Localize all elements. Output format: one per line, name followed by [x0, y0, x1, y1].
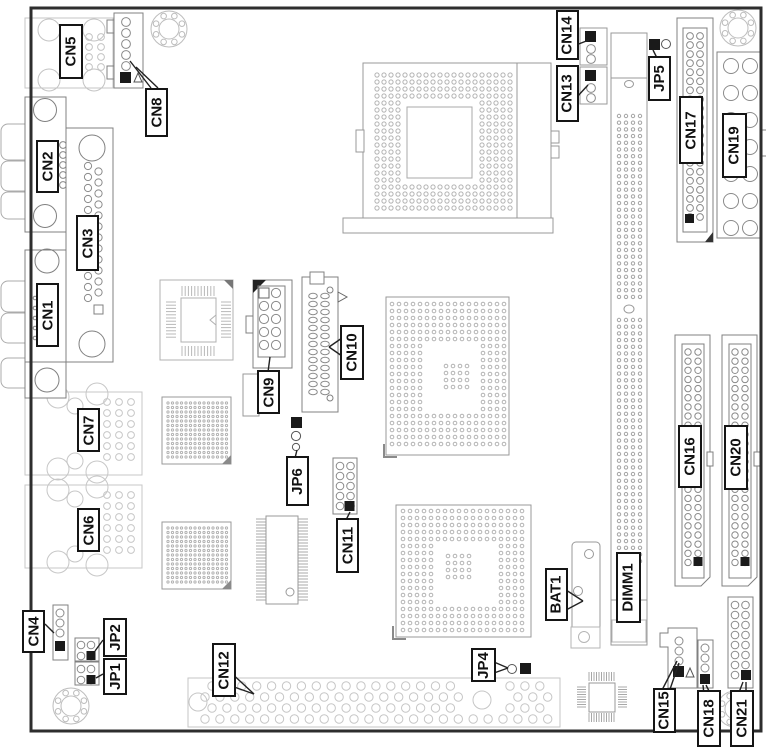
qfp2-pins-right: [618, 687, 627, 707]
label-dimm1-text: DIMM1: [621, 563, 636, 611]
connector-cn9: [246, 280, 292, 368]
label-cn13-text: CN13: [560, 74, 575, 112]
jp4-pin1-marker: [520, 663, 531, 674]
label-cn19: CN19: [722, 113, 747, 178]
cpu-socket-tab: [356, 130, 364, 152]
label-cn12: CN12: [212, 643, 236, 697]
label-cn12-text: CN12: [217, 651, 232, 689]
connector-cn21: [728, 597, 753, 688]
label-cn6-text: CN6: [81, 515, 96, 545]
label-jp1: JP1: [103, 658, 127, 695]
label-cn4: CN4: [22, 610, 45, 653]
cn10-notch: [310, 272, 324, 284]
connector-cn13: [580, 67, 607, 104]
label-cn10: CN10: [340, 325, 364, 380]
label-cn14: CN14: [556, 10, 579, 60]
label-cn5: CN5: [59, 24, 83, 79]
cn4-outline: [53, 605, 68, 660]
cn16-pin1-marker: [694, 557, 703, 566]
cpu-socket-center-void: [407, 107, 472, 178]
label-cn20: CN20: [724, 425, 748, 490]
cpu-socket-lever-bar: [343, 218, 553, 233]
label-cn20-text: CN20: [729, 438, 744, 476]
cn4-pin1-marker: [55, 641, 65, 651]
label-bat1-text: BAT1: [549, 575, 564, 613]
cn17-pin1-marker: [685, 214, 694, 223]
connector-cn18: [698, 640, 713, 688]
label-cn9: CN9: [257, 370, 280, 414]
connector-cn14: [580, 28, 607, 65]
label-cn18: CN18: [697, 690, 721, 747]
label-cn7: CN7: [77, 408, 100, 452]
label-jp2: JP2: [103, 618, 127, 657]
cn20-pin1-marker: [741, 557, 750, 566]
jp2-pin1-marker: [87, 651, 96, 660]
cn8-pin1-marker: [120, 72, 131, 83]
small-component: [571, 627, 600, 648]
label-cn15: CN15: [653, 688, 676, 733]
bga-chip-small-a: [162, 397, 231, 464]
label-cn1: CN1: [36, 283, 59, 347]
cpu-socket-tab: [551, 131, 559, 143]
qfp-chip-top: [160, 280, 233, 360]
jp5-pin1-marker: [649, 39, 660, 50]
label-cn4-text: CN4: [26, 616, 41, 646]
label-cn11: CN11: [336, 518, 359, 573]
cn3-pin1-square: [94, 305, 103, 314]
label-jp5-text: JP5: [652, 65, 667, 92]
bga-chip-south: [393, 505, 531, 639]
qfp2-body: [589, 683, 615, 712]
label-jp2-text: JP2: [108, 624, 123, 651]
small-component: [612, 620, 646, 642]
label-cn14-text: CN14: [560, 16, 575, 54]
board-diagram: CN5 CN8 CN2 CN3 CN1 CN7 CN6 CN4 JP2 JP1 …: [0, 0, 766, 748]
label-cn19-text: CN19: [727, 126, 742, 164]
cn11-pin1-marker: [345, 501, 355, 511]
label-cn21-text: CN21: [735, 699, 750, 737]
label-cn1-text: CN1: [40, 300, 55, 330]
label-cn18-text: CN18: [702, 699, 717, 737]
cn16-notch: [707, 452, 713, 466]
jumper-jp1-block: [75, 662, 99, 685]
cpu-socket: [343, 63, 559, 233]
label-cn5-text: CN5: [64, 36, 79, 66]
tsop-body: [266, 516, 298, 604]
label-cn2: CN2: [36, 140, 59, 193]
label-cn10-text: CN10: [345, 333, 360, 371]
label-jp5: JP5: [648, 56, 671, 101]
label-dimm1: DIMM1: [616, 552, 641, 623]
label-jp6: JP6: [286, 456, 309, 506]
jp1-pin1-marker: [87, 675, 96, 684]
label-cn3: CN3: [76, 215, 99, 271]
cpu-socket-tab: [551, 146, 559, 158]
connector-cn4: [53, 605, 68, 660]
label-cn17-text: CN17: [684, 111, 699, 149]
label-cn16-text: CN16: [683, 437, 698, 475]
cn21-pin1-marker: [741, 670, 751, 680]
label-cn16: CN16: [678, 425, 702, 488]
label-jp1-text: JP1: [108, 663, 123, 690]
label-cn21: CN21: [730, 690, 754, 747]
label-cn6: CN6: [77, 508, 100, 552]
label-cn8-text: CN8: [149, 97, 164, 127]
cn20-notch: [754, 452, 760, 466]
bga-chip-north: [384, 297, 509, 457]
label-jp4: JP4: [471, 648, 496, 682]
label-jp6-text: JP6: [290, 468, 305, 495]
label-cn11-text: CN11: [340, 527, 355, 565]
qfp2-pins-left: [577, 687, 586, 707]
label-cn13: CN13: [556, 65, 579, 122]
label-cn2-text: CN2: [40, 151, 55, 181]
label-cn15-text: CN15: [657, 691, 672, 729]
bga-chip-small-b: [162, 522, 231, 589]
label-cn9-text: CN9: [261, 377, 276, 407]
cn9-pin1-square: [259, 288, 269, 298]
label-cn7-text: CN7: [81, 415, 96, 445]
cn19-edge-tab: [762, 130, 766, 156]
label-bat1: BAT1: [545, 568, 568, 621]
cn13-pin1-marker: [585, 70, 596, 81]
label-cn8: CN8: [145, 88, 168, 137]
label-cn17: CN17: [679, 96, 703, 164]
jp6-pin1-marker: [291, 417, 302, 428]
label-cn3-text: CN3: [80, 228, 95, 258]
label-jp4-text: JP4: [476, 652, 491, 679]
cn18-pin1-marker: [700, 674, 710, 684]
connector-cn11: [333, 458, 357, 514]
